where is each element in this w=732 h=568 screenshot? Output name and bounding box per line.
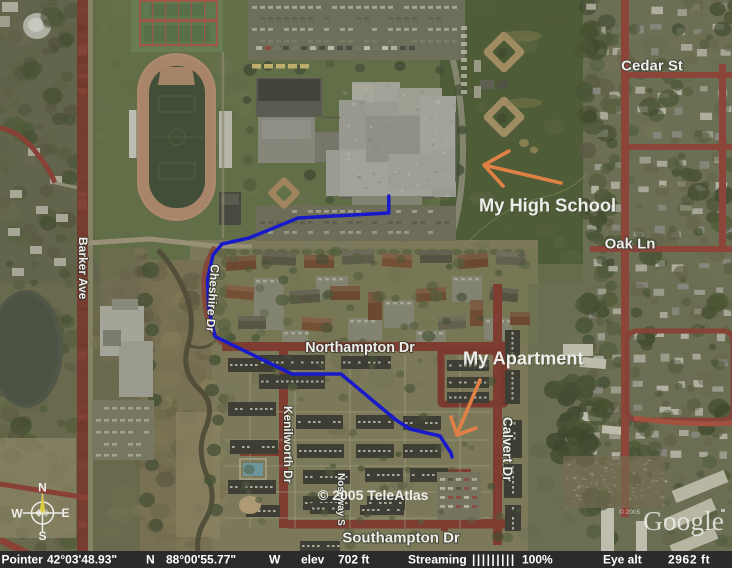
svg-text:42°03'48.93": 42°03'48.93"	[47, 553, 117, 567]
svg-text:|||||||||: |||||||||	[472, 553, 516, 567]
svg-text:N: N	[146, 553, 155, 567]
svg-text:W: W	[269, 553, 281, 567]
svg-text:2962 ft: 2962 ft	[668, 553, 710, 567]
svg-text:88°00'55.77": 88°00'55.77"	[166, 553, 236, 567]
svg-text:Eye alt: Eye alt	[603, 553, 642, 567]
svg-text:elev: elev	[301, 553, 325, 567]
svg-text:702 ft: 702 ft	[338, 553, 369, 567]
svg-text:Streaming: Streaming	[408, 553, 467, 567]
svg-text:Pointer: Pointer	[2, 553, 44, 567]
svg-text:100%: 100%	[522, 553, 553, 567]
